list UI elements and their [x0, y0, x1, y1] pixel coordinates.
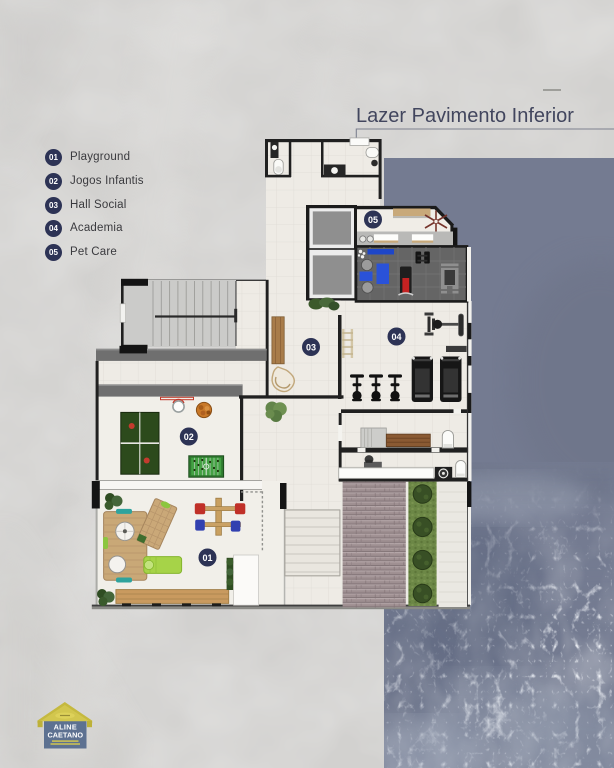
- svg-text:05: 05: [368, 215, 378, 225]
- svg-text:02: 02: [184, 432, 194, 442]
- svg-text:CAETANO: CAETANO: [48, 730, 84, 739]
- svg-text:03: 03: [306, 342, 316, 352]
- svg-text:04: 04: [391, 332, 401, 342]
- svg-text:01: 01: [202, 553, 212, 563]
